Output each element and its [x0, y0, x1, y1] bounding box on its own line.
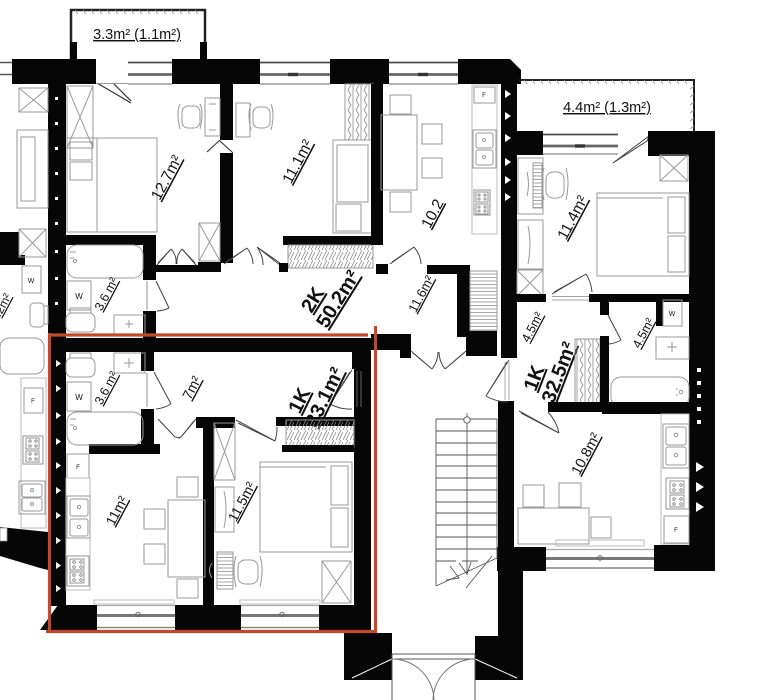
svg-text:3.3m² (1.1m²): 3.3m² (1.1m²) — [93, 27, 181, 43]
svg-text:W: W — [75, 393, 83, 402]
svg-text:W: W — [28, 278, 35, 285]
svg-text:F: F — [76, 465, 80, 471]
svg-text:W: W — [669, 311, 676, 318]
svg-text:W: W — [75, 292, 83, 301]
svg-text:F: F — [482, 93, 486, 99]
svg-text:4.4m² (1.3m²): 4.4m² (1.3m²) — [563, 100, 651, 116]
svg-text:F: F — [31, 399, 35, 405]
svg-text:F: F — [674, 528, 678, 534]
